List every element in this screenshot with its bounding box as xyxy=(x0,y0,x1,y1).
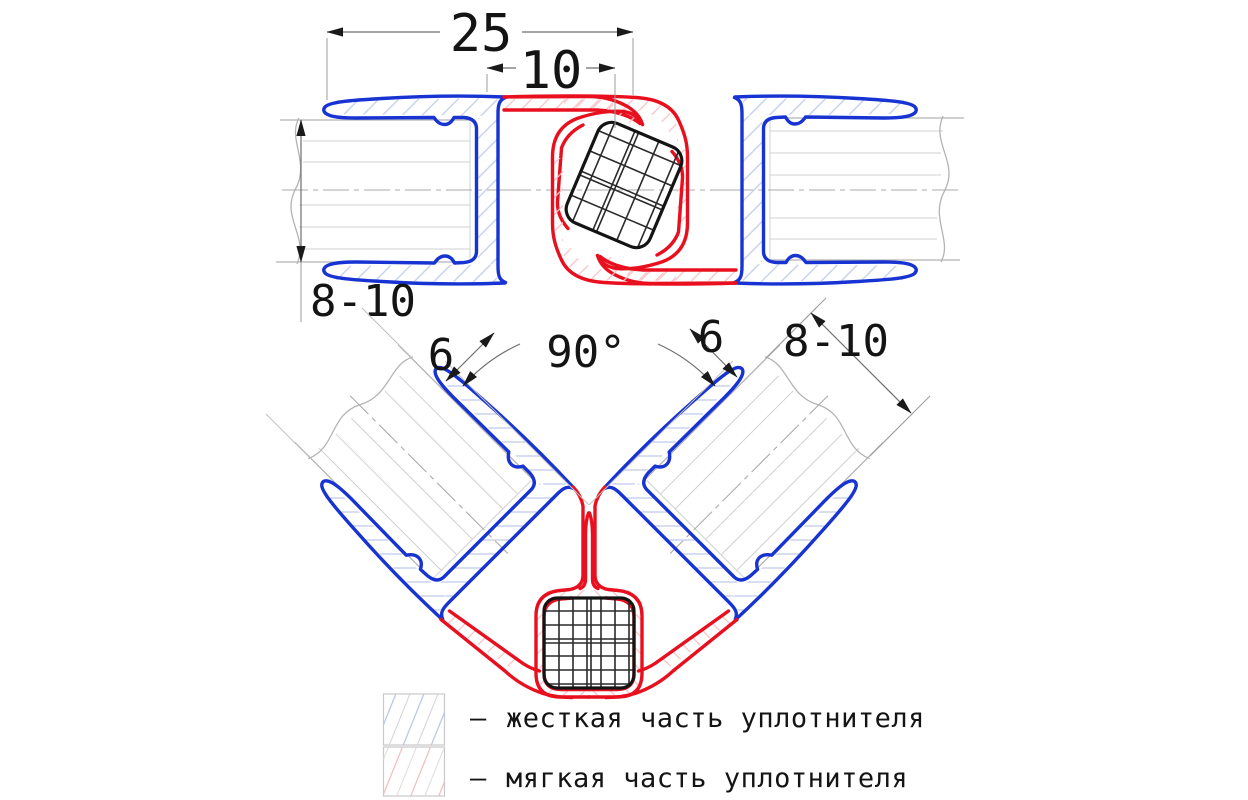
right-glass-channel xyxy=(735,96,965,284)
dim-soft-zone-width: 10 xyxy=(520,41,583,101)
magnet-corner-joint xyxy=(539,593,639,693)
dimension-25: 25 xyxy=(327,4,633,100)
legend-label-rigid: жесткая часть уплотнителя xyxy=(506,703,925,734)
seal-profile-drawing: 25 10 8-10 xyxy=(0,0,1248,800)
legend-item-soft: – мягкая часть уплотнителя xyxy=(384,747,909,796)
left-glass-channel xyxy=(276,96,506,284)
legend: – жесткая часть уплотнителя – мягкая час… xyxy=(384,694,925,796)
legend-label-soft: мягкая часть уплотнителя xyxy=(506,763,908,794)
straight-joint-assembly xyxy=(276,96,964,284)
legend-dash: – xyxy=(470,703,487,734)
rigid-hatch-swatch xyxy=(384,694,445,745)
dim-lip-left: 6 xyxy=(428,330,455,381)
legend-dash: – xyxy=(470,763,487,794)
dim-lip-right: 6 xyxy=(698,312,725,363)
dim-angle: 90° xyxy=(546,327,625,378)
corner-joint-assembly xyxy=(279,325,898,697)
dim-glass-left: 8-10 xyxy=(310,276,416,327)
dim-overall-width: 25 xyxy=(450,4,513,64)
dimension-8-10-left: 8-10 xyxy=(301,120,416,327)
dimension-6-right: 6 xyxy=(690,312,737,377)
soft-hatch-swatch xyxy=(384,747,445,796)
dim-glass-right: 8-10 xyxy=(783,316,889,367)
dimension-6-left: 6 xyxy=(428,330,494,381)
dimension-8-10-right: 8-10 xyxy=(766,298,930,456)
legend-item-rigid: – жесткая часть уплотнителя xyxy=(384,694,925,745)
corner-right-glass-channel xyxy=(604,325,899,620)
